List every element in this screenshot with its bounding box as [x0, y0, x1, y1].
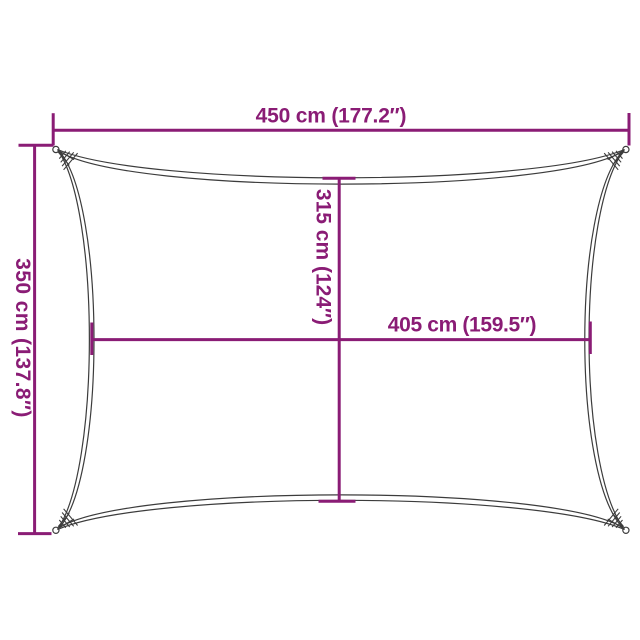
svg-text:350 cm (137.8″): 350 cm (137.8″) [11, 258, 34, 418]
svg-text:405 cm (159.5″): 405 cm (159.5″) [388, 313, 536, 336]
svg-text:315 cm (124″): 315 cm (124″) [312, 189, 335, 325]
svg-text:450 cm (177.2″): 450 cm (177.2″) [256, 105, 407, 128]
